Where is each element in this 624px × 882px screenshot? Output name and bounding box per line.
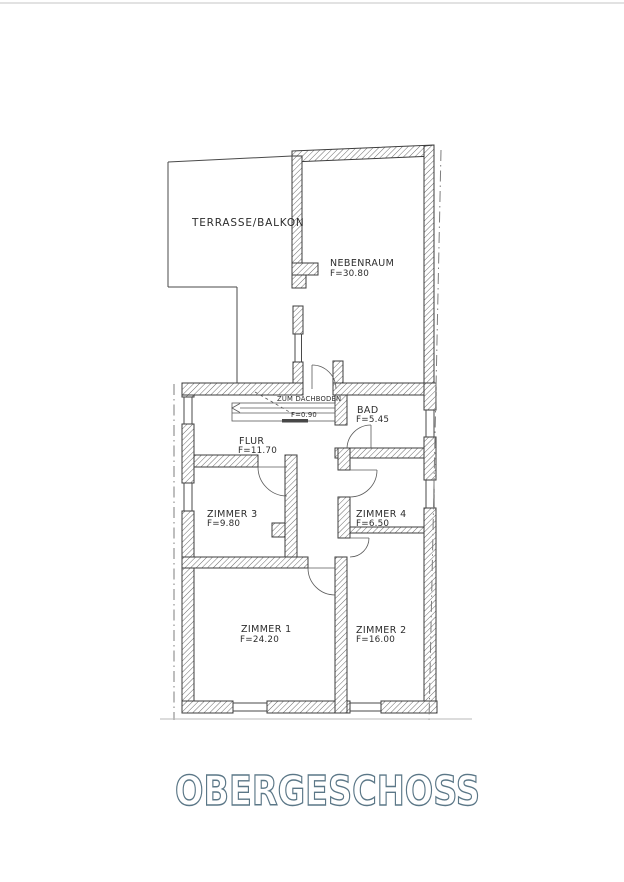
room-area-zimmer1: F=24.20 xyxy=(240,635,279,645)
room-area-flur: F=11.70 xyxy=(238,446,277,456)
room-label-terrasse: TERRASSE/BALKON xyxy=(191,217,305,229)
room-area-zimmer4: F=6.50 xyxy=(356,519,389,529)
terrace-outline xyxy=(168,156,292,384)
room-label-nebenraum: NEBENRAUM xyxy=(330,258,394,269)
room-area-zimmer3: F=9.80 xyxy=(207,519,240,529)
room-area-nebenraum: F=30.80 xyxy=(330,269,369,279)
room-area-zimmer2: F=16.00 xyxy=(356,635,395,645)
plan-title: OBERGESCHOSS xyxy=(175,767,480,815)
windows xyxy=(184,397,434,711)
room-label-zimmer1: ZIMMER 1 xyxy=(241,624,292,635)
stair-width-label: F=0.90 xyxy=(291,411,317,419)
interior-walls xyxy=(182,395,424,713)
stair-label: ZUM DACHBODEN xyxy=(277,395,341,403)
room-area-bad: F=5.45 xyxy=(356,415,389,425)
floorplan-drawing: TERRASSE/BALKON NEBENRAUM F=30.80 BAD F=… xyxy=(0,0,624,882)
floorplan-page: TERRASSE/BALKON NEBENRAUM F=30.80 BAD F=… xyxy=(0,0,624,882)
stair-direction-arrow xyxy=(232,404,240,413)
outer-walls xyxy=(182,383,437,713)
connector-window xyxy=(295,334,302,362)
